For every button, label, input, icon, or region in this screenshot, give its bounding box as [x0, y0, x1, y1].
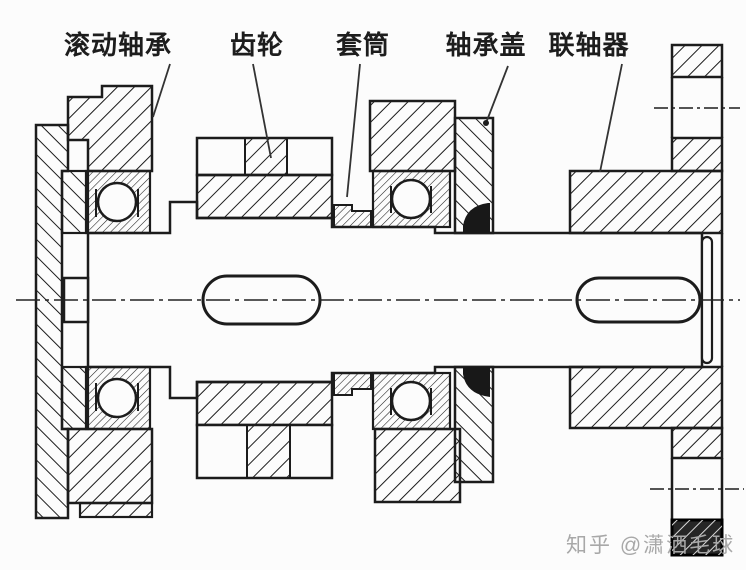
label-sleeve: 套筒 [336, 30, 390, 60]
watermark: 知乎 @潇洒毛球 [566, 534, 735, 557]
bearing-ball [392, 180, 430, 218]
gear [197, 138, 332, 478]
bearing-ball [98, 183, 136, 221]
label-bearing-cover: 轴承盖 [445, 30, 526, 60]
bearing-ball [98, 379, 136, 417]
label-rolling-bearing: 滚动轴承 [64, 30, 172, 60]
engineering-drawing-page: 滚动轴承 齿轮 套筒 轴承盖 联轴器 知乎 @潇洒毛球 [0, 0, 746, 570]
leader-dot [483, 120, 489, 126]
bearing-ball [392, 382, 430, 420]
label-gear: 齿轮 [230, 31, 284, 60]
section-drawing: 滚动轴承 齿轮 套筒 轴承盖 联轴器 知乎 @潇洒毛球 [0, 0, 746, 570]
label-coupling: 联轴器 [548, 31, 629, 60]
